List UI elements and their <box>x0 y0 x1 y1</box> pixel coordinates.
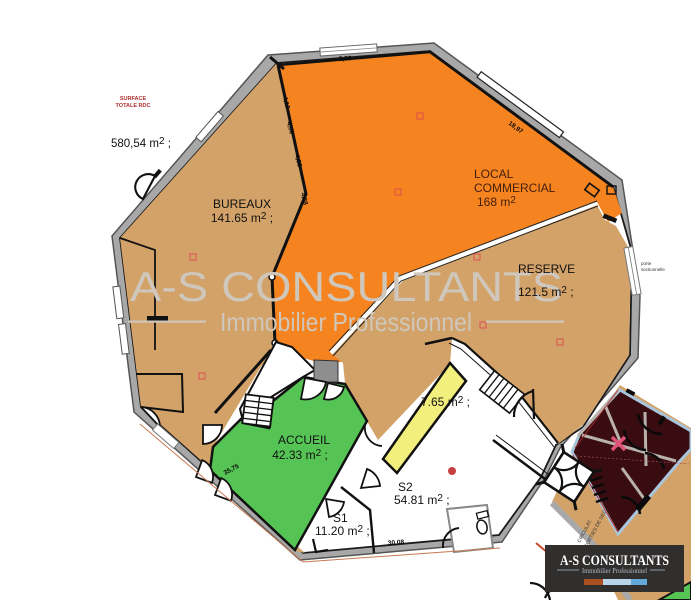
svg-text:LOCAL: LOCAL <box>474 167 514 181</box>
svg-text:RESERVE: RESERVE <box>518 262 575 276</box>
svg-text:COMMERCIAL: COMMERCIAL <box>474 181 556 195</box>
svg-text:5,80: 5,80 <box>339 55 352 63</box>
svg-text:A-S CONSULTANTS: A-S CONSULTANTS <box>130 263 563 310</box>
svg-text:Immobilier Professionnel: Immobilier Professionnel <box>220 307 472 337</box>
svg-text:30,08: 30,08 <box>388 539 405 547</box>
svg-text:Immobilier Professionnel: Immobilier Professionnel <box>582 567 647 575</box>
svg-text:sectionnelle: sectionnelle <box>641 267 665 272</box>
svg-text:porte: porte <box>641 261 652 266</box>
svg-text:ACCUEIL: ACCUEIL <box>278 433 330 447</box>
svg-text:S1: S1 <box>333 511 348 525</box>
svg-text:BUREAUX: BUREAUX <box>213 197 271 211</box>
svg-text:7.65 m2 ;: 7.65 m2 ; <box>421 395 470 409</box>
svg-text:TOTALE RDC: TOTALE RDC <box>116 103 151 109</box>
svg-text:SURFACE: SURFACE <box>120 96 147 102</box>
svg-text:S2: S2 <box>398 480 413 494</box>
